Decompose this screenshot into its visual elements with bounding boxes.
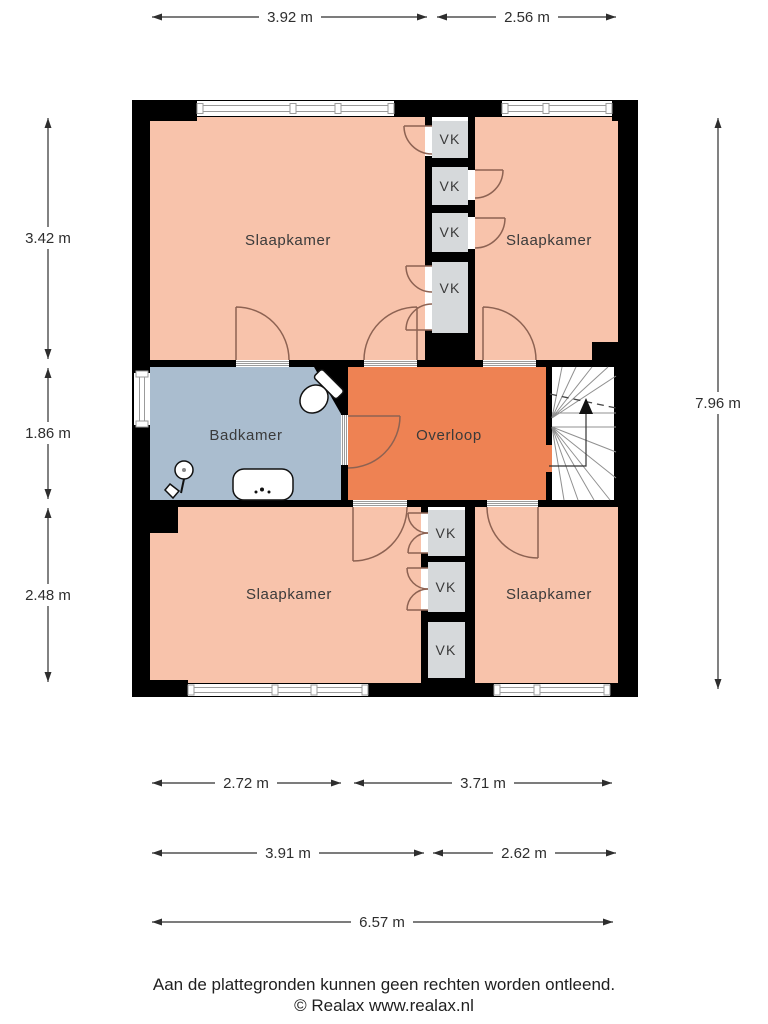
threshold (487, 500, 538, 507)
label-bedroom-top-right: Slaapkamer (506, 232, 592, 249)
label-closet-3: VK (439, 224, 460, 240)
sink (233, 469, 293, 500)
closet-door-gap (428, 507, 465, 510)
dim-label: 2.62 m (501, 845, 547, 862)
wall-bottom-left-notch (145, 500, 178, 533)
dim-label: 3.42 m (25, 230, 71, 247)
window-bottom-left (188, 684, 368, 696)
dim-label: 3.92 m (267, 9, 313, 26)
closet-box (432, 262, 468, 333)
dim-left-3: 2.48 m (25, 508, 71, 682)
room-staircase (552, 367, 616, 500)
dim-label: 3.71 m (460, 775, 506, 792)
dim-top-2: 2.56 m (437, 9, 616, 26)
footer-disclaimer: Aan de plattegronden kunnen geen rechten… (153, 975, 615, 994)
wall-landing-stairs (546, 367, 552, 500)
wall-right-stairs (614, 367, 638, 507)
floorplan-page: Slaapkamer Slaapkamer Badkamer Overloop … (0, 0, 768, 1024)
label-bedroom-bottom-left: Slaapkamer (246, 586, 332, 603)
footer-copyright: © Realax www.realax.nl (294, 996, 474, 1015)
floorplan-drawing: Slaapkamer Slaapkamer Badkamer Overloop … (0, 0, 768, 1024)
stairs-entry-gap (546, 445, 552, 472)
threshold (364, 360, 417, 367)
wall-closet-sep (428, 556, 465, 562)
wall-closet-base (425, 333, 475, 360)
dim-label: 2.56 m (504, 9, 550, 26)
label-closet-6: VK (435, 579, 456, 595)
window-bottom-right (494, 684, 610, 696)
dim-bottom1-1: 2.72 m (152, 775, 341, 792)
dim-bottom2-2: 2.62 m (433, 845, 616, 862)
label-bathroom: Badkamer (209, 427, 282, 444)
wall-flue-notch (592, 342, 618, 367)
dim-left-1: 3.42 m (25, 118, 71, 359)
dim-right-1: 7.96 m (695, 118, 741, 689)
dim-label: 2.48 m (25, 587, 71, 604)
window-top-left (197, 101, 394, 116)
window-bathroom (134, 371, 150, 427)
wall-closet-bottom-right (465, 507, 475, 683)
wall-closet-sep (428, 678, 465, 683)
dim-left-2: 1.86 m (25, 368, 71, 499)
label-closet-2: VK (439, 178, 460, 194)
threshold (236, 360, 289, 367)
label-closet-4: VK (439, 280, 460, 296)
wall-closet-sep (428, 612, 465, 622)
footer: Aan de plattegronden kunnen geen rechten… (153, 975, 615, 1015)
dim-label: 6.57 m (359, 914, 405, 931)
dim-label: 3.91 m (265, 845, 311, 862)
label-closet-5: VK (435, 525, 456, 541)
dim-label: 2.72 m (223, 775, 269, 792)
window-top-right (502, 101, 612, 116)
dim-bottom2-1: 3.91 m (152, 845, 424, 862)
label-bedroom-bottom-right: Slaapkamer (506, 586, 592, 603)
dim-bottom1-2: 3.71 m (354, 775, 612, 792)
dim-label: 7.96 m (695, 395, 741, 412)
wall-closet-sep (432, 158, 468, 167)
wall-closet-sep (432, 252, 468, 262)
closet-door-gap (425, 266, 432, 330)
label-closet-1: VK (439, 131, 460, 147)
label-closet-7: VK (435, 642, 456, 658)
threshold (483, 360, 536, 367)
label-bedroom-top-left: Slaapkamer (245, 232, 331, 249)
threshold (341, 415, 348, 465)
threshold (353, 500, 407, 507)
closet-door-gap (432, 117, 468, 121)
closet-door-gap (468, 170, 475, 200)
dim-label: 1.86 m (25, 425, 71, 442)
closet-door-gap (425, 126, 432, 156)
dim-bottom3-1: 6.57 m (152, 914, 613, 931)
closet-door-gap (468, 217, 475, 249)
wall-closet-sep (432, 205, 468, 213)
dim-top-1: 3.92 m (152, 9, 427, 26)
label-landing: Overloop (416, 427, 482, 444)
